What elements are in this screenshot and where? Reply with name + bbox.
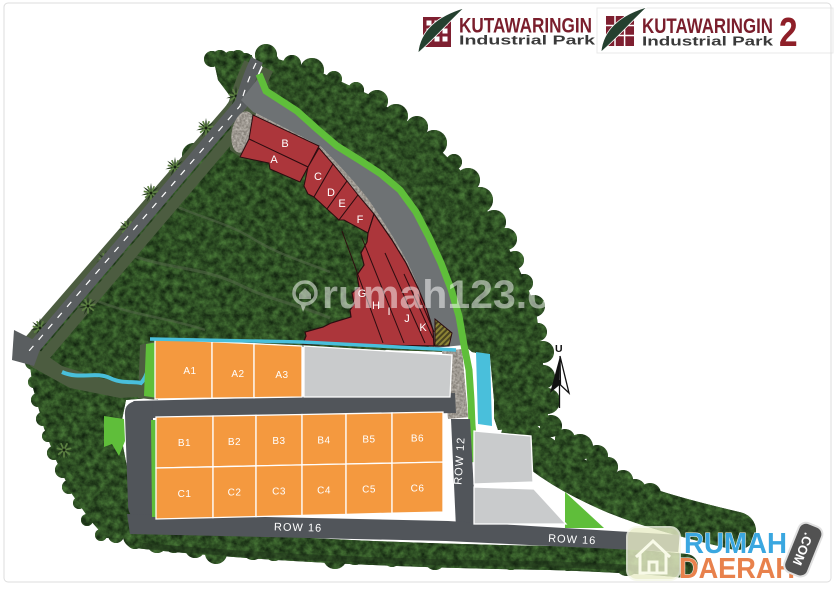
svg-text:B3: B3 <box>272 436 285 447</box>
svg-text:A: A <box>270 154 278 166</box>
svg-text:Industrial Park: Industrial Park <box>459 33 596 48</box>
svg-text:B6: B6 <box>411 433 424 444</box>
svg-text:A1: A1 <box>183 366 196 377</box>
svg-text:C4: C4 <box>317 486 331 497</box>
svg-text:rumah123.co: rumah123.co <box>322 273 575 317</box>
svg-text:B4: B4 <box>317 435 330 446</box>
svg-text:ROW 16: ROW 16 <box>274 521 322 534</box>
svg-text:B: B <box>281 138 288 150</box>
svg-text:F: F <box>357 214 364 226</box>
svg-text:E: E <box>338 198 345 210</box>
svg-text:2: 2 <box>779 9 798 55</box>
svg-text:C5: C5 <box>362 485 376 496</box>
svg-text:B2: B2 <box>228 437 241 448</box>
svg-text:C1: C1 <box>178 489 192 500</box>
svg-text:U: U <box>555 343 563 355</box>
svg-text:C3: C3 <box>272 487 286 498</box>
svg-text:C: C <box>314 171 322 183</box>
svg-text:C2: C2 <box>228 488 242 499</box>
svg-text:B5: B5 <box>362 434 375 445</box>
svg-text:B1: B1 <box>178 438 191 449</box>
svg-text:ROW 16: ROW 16 <box>548 533 597 548</box>
svg-text:A2: A2 <box>231 369 244 380</box>
svg-text:A3: A3 <box>275 370 288 381</box>
svg-text:DAERAH: DAERAH <box>679 553 795 585</box>
svg-text:D: D <box>327 187 335 199</box>
svg-text:K: K <box>419 322 427 334</box>
svg-text:Industrial Park: Industrial Park <box>642 34 774 49</box>
svg-text:C6: C6 <box>411 484 425 495</box>
